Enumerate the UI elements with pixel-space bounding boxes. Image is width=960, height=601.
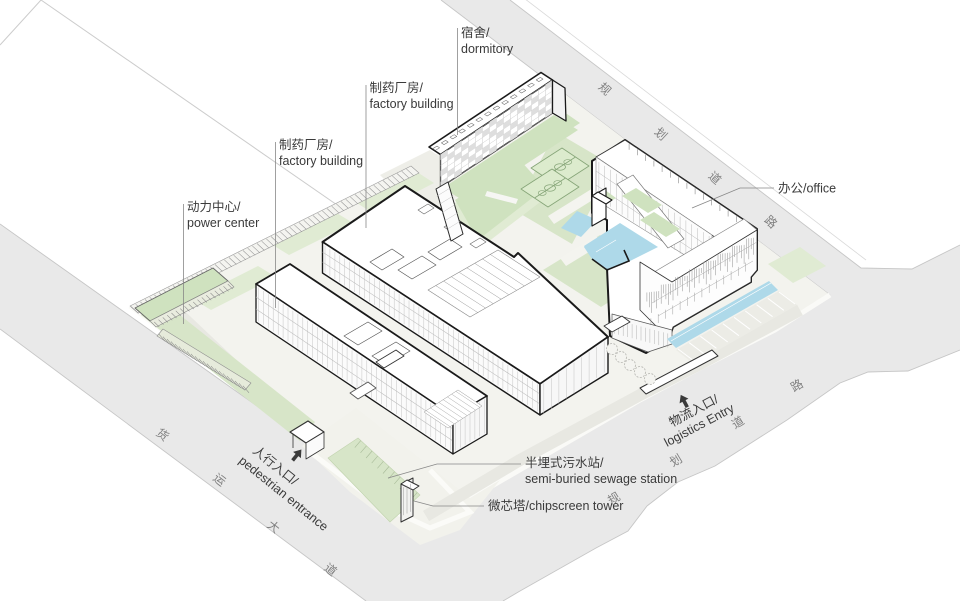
svg-text:制药厂房/: 制药厂房/ xyxy=(279,137,333,152)
svg-text:半埋式污水站/: 半埋式污水站/ xyxy=(525,456,604,470)
svg-text:power center: power center xyxy=(187,216,259,230)
svg-text:办公/office: 办公/office xyxy=(778,181,836,196)
svg-text:宿舍/: 宿舍/ xyxy=(461,25,490,40)
svg-text:semi-buried sewage station: semi-buried sewage station xyxy=(525,472,677,486)
svg-text:factory building: factory building xyxy=(370,97,454,111)
svg-text:制药厂房/: 制药厂房/ xyxy=(370,80,424,95)
svg-text:factory building: factory building xyxy=(279,154,363,168)
svg-text:dormitory: dormitory xyxy=(461,42,514,56)
svg-text:动力中心/: 动力中心/ xyxy=(187,199,241,214)
svg-text:微芯塔/chipscreen tower: 微芯塔/chipscreen tower xyxy=(488,499,623,513)
